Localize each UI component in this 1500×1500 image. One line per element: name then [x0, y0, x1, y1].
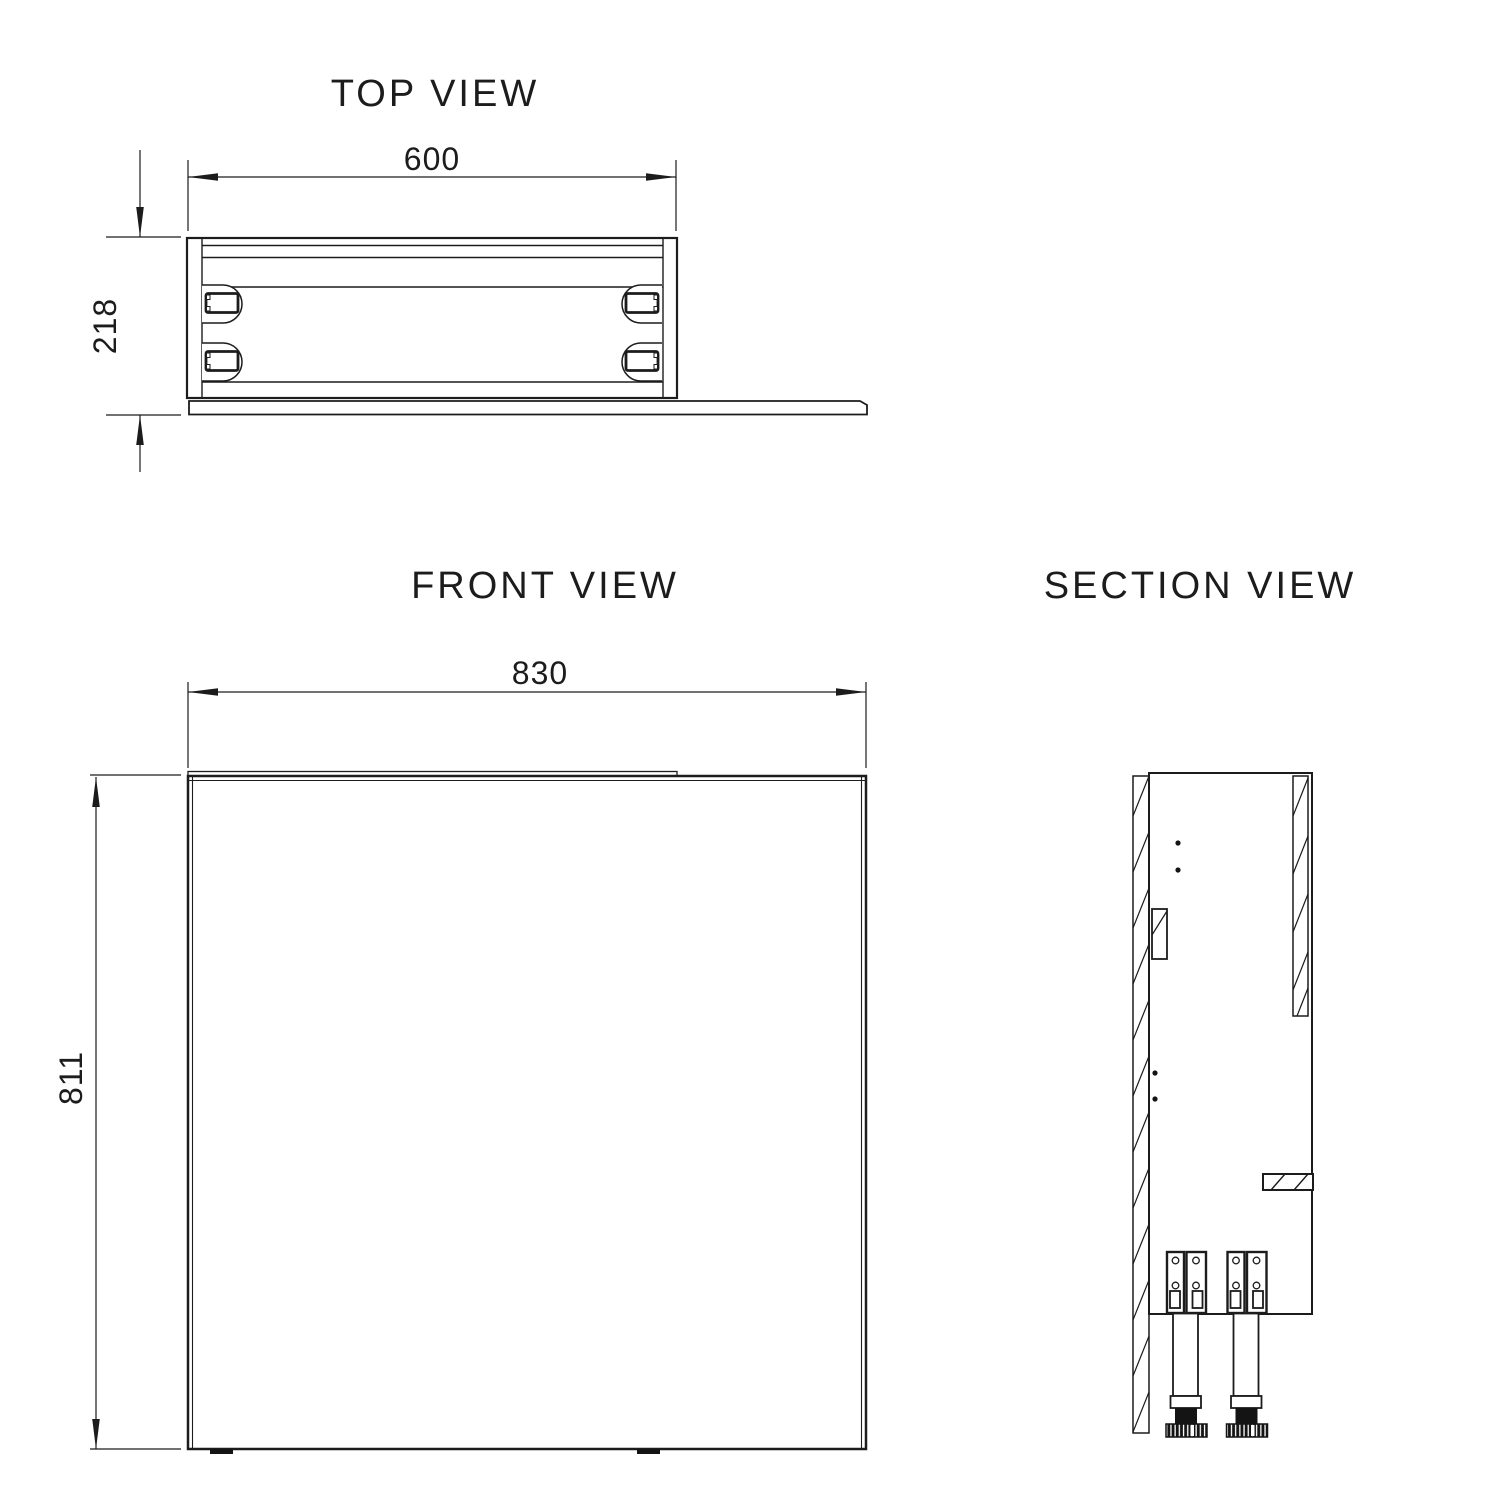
knurled-foot-gap [1191, 1425, 1195, 1436]
top-view-width-dimension: 600 [188, 141, 676, 231]
bracket-back-left [202, 285, 242, 323]
front-view-panel [188, 772, 866, 1455]
extension-lines [90, 775, 181, 1449]
screw-hole [1172, 1257, 1179, 1264]
top-view-depth-dimension: 218 [87, 150, 181, 472]
foot-tip-right [637, 1449, 660, 1454]
arrowhead-top [92, 777, 100, 807]
front-view-width-dimension: 830 [188, 655, 866, 768]
arrowhead-bottom [92, 1419, 100, 1449]
foot-tip-left [210, 1449, 233, 1454]
arrowhead-left [188, 173, 218, 181]
front-view-height-dimension: 811 [53, 775, 181, 1449]
technical-drawing-page: TOP VIEW 600 218 [0, 0, 1500, 1500]
bracket-front-left [202, 343, 242, 381]
knurled-foot [1166, 1424, 1207, 1437]
bracket-front-right [622, 343, 662, 381]
section-cabinet-outline [1149, 773, 1312, 1314]
front-height-label: 811 [53, 1051, 89, 1105]
front-view-title: FRONT VIEW [411, 565, 679, 607]
bracket-back-right [622, 285, 662, 323]
top-width-label: 600 [404, 141, 460, 177]
front-panel-outline [188, 776, 866, 1449]
arrowhead-right [646, 173, 676, 181]
leg-column [1173, 1314, 1198, 1397]
arrowhead-left [188, 688, 218, 696]
pin-hole [1175, 840, 1180, 845]
front-view: FRONT VIEW 830 811 [53, 565, 866, 1454]
pin-hole [1152, 1070, 1157, 1075]
section-back-panel [1133, 776, 1149, 1433]
section-view-title: SECTION VIEW [1044, 565, 1357, 607]
leg-collar [1171, 1396, 1202, 1408]
section-view: SECTION VIEW [1044, 565, 1357, 1437]
screw-hole [1193, 1282, 1200, 1289]
pin-hole [1175, 867, 1180, 872]
top-depth-label: 218 [87, 298, 123, 354]
extension-lines [188, 682, 866, 768]
front-width-label: 830 [512, 655, 568, 691]
arrowhead-bottom [136, 415, 144, 445]
back-panel-outline [1133, 776, 1149, 1433]
adjustable-leg-front [1166, 1252, 1207, 1437]
top-view-title: TOP VIEW [331, 73, 539, 115]
cabinet-outline [187, 238, 677, 398]
arrowhead-top [136, 207, 144, 237]
screw-hole [1172, 1282, 1179, 1289]
section-drawer-rail [1152, 909, 1167, 959]
section-door-panel [1293, 776, 1308, 1016]
adjustable-leg-rear [1227, 1252, 1268, 1437]
arrowhead-right [836, 688, 866, 696]
drawing-canvas: TOP VIEW 600 218 [0, 0, 1500, 1500]
screw-hole [1193, 1257, 1200, 1264]
drawer-rail-outline [1152, 909, 1167, 959]
door-panel-outline [1293, 776, 1308, 1016]
worktop [189, 401, 867, 415]
bracket-slot [1170, 1291, 1180, 1308]
pin-hole [1152, 1096, 1157, 1101]
bracket-slot [1193, 1291, 1203, 1308]
foot-stem [1175, 1408, 1197, 1424]
section-bottom-rail [1263, 1174, 1313, 1190]
top-view-cabinet [187, 238, 867, 415]
top-view: TOP VIEW 600 218 [87, 73, 867, 472]
